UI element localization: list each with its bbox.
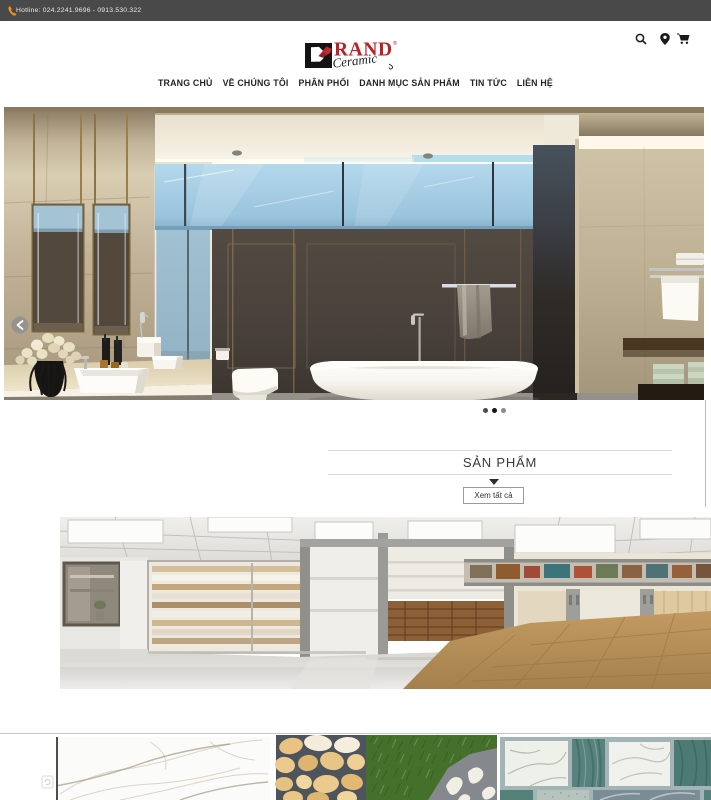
svg-text:®: ® (393, 40, 397, 47)
